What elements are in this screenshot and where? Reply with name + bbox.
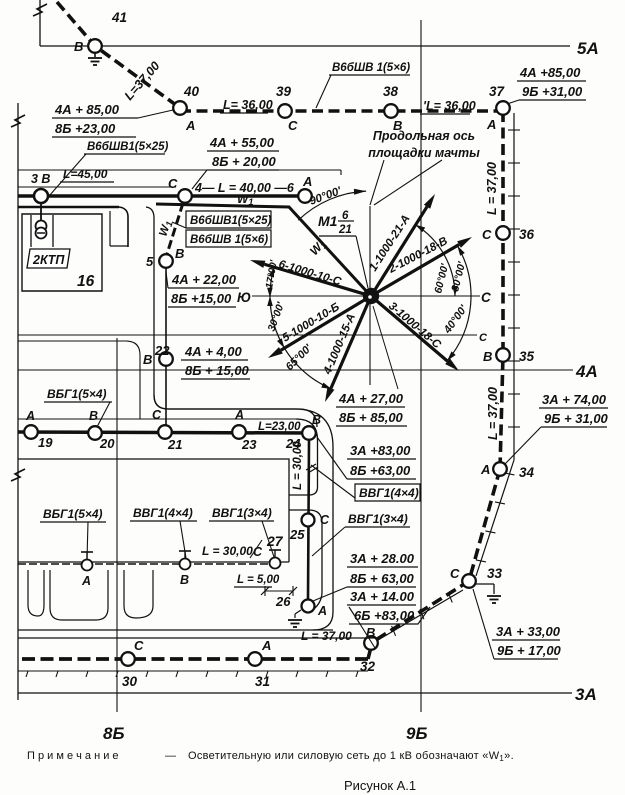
svg-text:9Б + 31,00: 9Б + 31,00 (544, 411, 609, 426)
svg-text:35: 35 (519, 349, 535, 364)
svg-text:19: 19 (38, 435, 53, 450)
svg-text:3 В: 3 В (31, 172, 50, 186)
svg-text:L = 37,00: L = 37,00 (486, 387, 500, 440)
svg-text:площадки мачты: площадки мачты (368, 146, 480, 160)
svg-text:С: С (481, 290, 491, 305)
svg-text:3А: 3А (575, 685, 597, 704)
svg-text:—: — (165, 750, 176, 762)
svg-text:С: С (168, 176, 178, 191)
svg-text:А: А (261, 638, 271, 653)
svg-text:А: А (480, 462, 490, 477)
svg-text:ВВГ1(4×4): ВВГ1(4×4) (359, 486, 419, 500)
svg-text:4А + 85,00: 4А + 85,00 (54, 102, 120, 117)
svg-text:26: 26 (275, 594, 291, 609)
svg-text:А: А (302, 174, 312, 189)
svg-text:3А + 33,00: 3А + 33,00 (496, 624, 561, 639)
svg-text:В6бШВ1(5×25): В6бШВ1(5×25) (190, 215, 272, 227)
svg-text:9Б: 9Б (406, 724, 428, 743)
svg-text:L = 5,00: L = 5,00 (237, 574, 280, 586)
svg-text:38: 38 (383, 84, 399, 99)
svg-text:33: 33 (487, 566, 503, 581)
svg-text:34: 34 (519, 465, 535, 480)
svg-text:В6бШВ1(5×25): В6бШВ1(5×25) (87, 141, 169, 153)
svg-text:4А + 27,00: 4А + 27,00 (338, 391, 404, 406)
svg-text:8Б +23,00: 8Б +23,00 (55, 121, 116, 136)
svg-text:8Б + 85,00: 8Б + 85,00 (339, 410, 404, 425)
svg-text:30: 30 (122, 674, 138, 689)
svg-text:31: 31 (255, 674, 270, 689)
svg-text:21: 21 (167, 437, 182, 452)
svg-text:9Б +31,00: 9Б +31,00 (522, 84, 583, 99)
svg-text:4А + 22,00: 4А + 22,00 (171, 272, 237, 287)
svg-text:4А + 4,00: 4А + 4,00 (184, 344, 243, 359)
svg-text:В: В (89, 409, 98, 423)
svg-text:40: 40 (183, 84, 200, 99)
svg-text:36: 36 (519, 227, 535, 242)
svg-text:В: В (74, 39, 83, 54)
svg-text:А: А (185, 118, 195, 133)
svg-text:Осветительную или силовую сеть: Осветительную или силовую сеть до 1 кВ о… (188, 750, 514, 763)
svg-text:С: С (450, 566, 460, 581)
svg-text:В: В (180, 573, 189, 587)
svg-text:6Б +83,00: 6Б +83,00 (354, 608, 415, 623)
svg-text:В6бШВ 1(5×6): В6бШВ 1(5×6) (190, 234, 268, 246)
svg-text:4А +85,00: 4А +85,00 (519, 65, 581, 80)
svg-text:3А + 14.00: 3А + 14.00 (350, 589, 415, 604)
svg-text:'L= 36,00: 'L= 36,00 (423, 99, 476, 113)
svg-text:ВБГ1(5×4): ВБГ1(5×4) (47, 387, 107, 401)
svg-text:П р и м е ч а н и е: П р и м е ч а н и е (27, 750, 119, 762)
svg-text:21: 21 (338, 224, 352, 236)
svg-text:32: 32 (360, 659, 376, 674)
svg-text:С: С (288, 118, 298, 133)
svg-text:ВВГ1(3×4): ВВГ1(3×4) (212, 506, 272, 520)
svg-text:Продольная ось: Продольная ось (373, 129, 475, 143)
svg-text:4А + 55,00: 4А + 55,00 (209, 135, 275, 150)
svg-text:8Б + 20,00: 8Б + 20,00 (212, 154, 277, 169)
svg-text:С: С (134, 638, 144, 653)
svg-text:С: С (152, 408, 162, 422)
svg-text:6: 6 (342, 210, 349, 222)
svg-text:В: В (483, 349, 492, 364)
svg-text:8Б + 15,00: 8Б + 15,00 (185, 363, 250, 378)
svg-text:L=45,00: L=45,00 (63, 167, 108, 181)
svg-text:L = 37,00: L = 37,00 (301, 629, 352, 643)
svg-text:А: А (234, 408, 244, 422)
svg-text:22: 22 (154, 343, 170, 358)
svg-text:С: С (482, 227, 492, 242)
svg-text:23: 23 (241, 437, 257, 452)
svg-text:ВБГ1(5×4): ВБГ1(5×4) (43, 507, 103, 521)
svg-text:16: 16 (77, 273, 95, 290)
svg-text:ВВГ1(4×4): ВВГ1(4×4) (133, 506, 193, 520)
svg-text:Рисунок А.1: Рисунок А.1 (344, 778, 416, 793)
svg-text:С: С (479, 332, 488, 344)
svg-text:8Б +15,00: 8Б +15,00 (171, 291, 232, 306)
svg-text:А: А (486, 117, 496, 132)
svg-text:М1: М1 (318, 213, 338, 229)
svg-text:25: 25 (289, 527, 305, 542)
svg-text:L = 30,00: L = 30,00 (202, 544, 253, 558)
svg-text:4А: 4А (575, 362, 598, 381)
svg-text:А: А (81, 574, 91, 588)
svg-text:8Б + 63,00: 8Б + 63,00 (350, 571, 415, 586)
svg-text:Ю: Ю (237, 290, 251, 305)
svg-text:3А + 74,00: 3А + 74,00 (542, 392, 607, 407)
svg-text:20: 20 (99, 436, 115, 451)
svg-text:А: А (317, 604, 327, 618)
svg-text:41: 41 (111, 10, 127, 25)
svg-text:5А: 5А (577, 39, 599, 58)
svg-text:3А +83,00: 3А +83,00 (350, 443, 411, 458)
svg-text:А: А (25, 409, 35, 423)
svg-text:L = 37,00: L = 37,00 (485, 162, 499, 215)
svg-text:5: 5 (146, 254, 154, 269)
svg-text:3А + 28.00: 3А + 28.00 (350, 551, 415, 566)
svg-text:8Б: 8Б (103, 724, 125, 743)
svg-text:2КТП: 2КТП (32, 253, 65, 267)
svg-text:В: В (143, 352, 152, 367)
svg-text:9Б + 17,00: 9Б + 17,00 (497, 643, 562, 658)
svg-text:L= 36,00: L= 36,00 (223, 98, 273, 112)
svg-text:L=23,00: L=23,00 (258, 421, 301, 433)
svg-text:37: 37 (489, 84, 506, 99)
svg-text:L = 30,00: L = 30,00 (292, 441, 304, 490)
svg-text:В6бШВ 1(5×6): В6бШВ 1(5×6) (332, 62, 410, 74)
svg-text:ВВГ1(3×4): ВВГ1(3×4) (348, 512, 408, 526)
svg-text:8Б +63,00: 8Б +63,00 (350, 463, 411, 478)
svg-text:39: 39 (276, 84, 292, 99)
svg-text:В: В (175, 246, 184, 261)
